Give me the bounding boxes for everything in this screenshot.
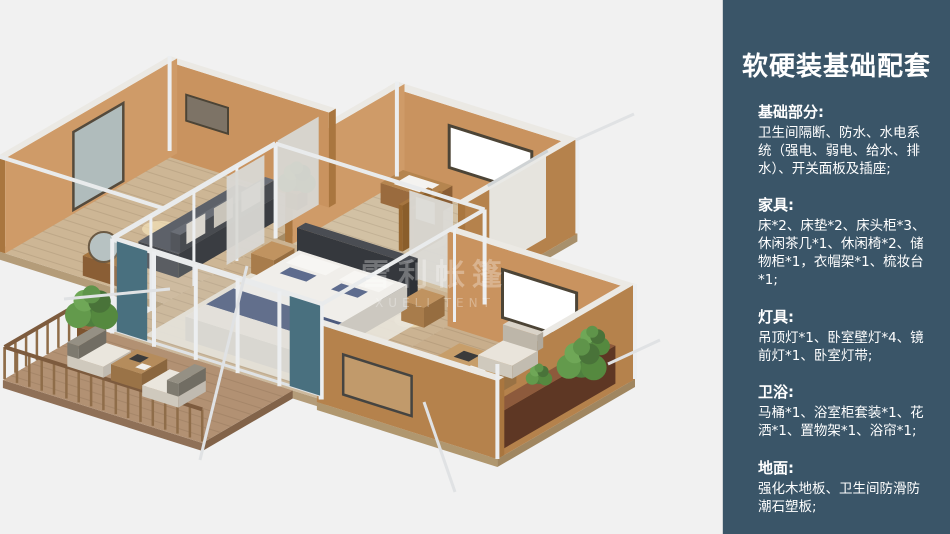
section-heading: 基础部分: — [758, 101, 930, 122]
section-body: 床*2、床垫*2、床头柜*3、休闲茶几*1、休闲椅*2、储物柜*1，衣帽架*1、… — [758, 218, 930, 289]
package-section: 家具:床*2、床垫*2、床头柜*3、休闲茶几*1、休闲椅*2、储物柜*1，衣帽架… — [758, 194, 930, 289]
shelf-plant — [586, 326, 598, 338]
lounge-north-wall — [329, 109, 336, 208]
section-heading: 卫浴: — [758, 381, 930, 402]
towel-ladder — [399, 204, 403, 251]
floorplan-svg — [0, 0, 722, 534]
section-body: 马桶*1、浴室柜套装*1、花洒*1、置物架*1、浴帘*1; — [758, 405, 930, 441]
panel-title: 软硬装基础配套 — [731, 46, 942, 83]
slide: 雪利帐篷 XUELI TENT 软硬装基础配套 基础部分:卫生间隔断、防水、水电… — [0, 0, 950, 534]
section-body: 卫生间隔断、防水、水电系统（强电、弱电、给水、排水）、开关面板及插座; — [758, 125, 930, 178]
package-section: 基础部分:卫生间隔断、防水、水电系统（强电、弱电、给水、排水）、开关面板及插座; — [758, 101, 930, 178]
tent-pole — [576, 114, 634, 140]
teal-drape — [290, 296, 320, 396]
package-section: 灯具:吊顶灯*1、卧室壁灯*4、镜前灯*1、卧室灯带; — [758, 306, 930, 366]
sofa-back — [171, 232, 181, 253]
lounge-west-wall — [0, 156, 5, 253]
floorplan-3d-render: 雪利帐篷 XUELI TENT — [0, 0, 722, 534]
section-heading: 灯具: — [758, 306, 930, 327]
section-body: 吊顶灯*1、卧室壁灯*4、镜前灯*1、卧室灯带; — [758, 330, 930, 366]
study-corner-plant — [573, 339, 590, 356]
package-sections: 基础部分:卫生间隔断、防水、水电系统（强电、弱电、给水、排水）、开关面板及插座;… — [723, 101, 950, 517]
package-section: 地面:强化木地板、卫生间防滑防潮石塑板; — [758, 457, 930, 517]
section-heading: 家具: — [758, 194, 930, 215]
package-section: 卫浴:马桶*1、浴室柜套装*1、花洒*1、置物架*1、浴帘*1; — [758, 381, 930, 441]
package-panel: 软硬装基础配套 基础部分:卫生间隔断、防水、水电系统（强电、弱电、给水、排水）、… — [722, 0, 950, 534]
section-body: 强化木地板、卫生间防滑防潮石塑板; — [758, 481, 930, 517]
section-heading: 地面: — [758, 457, 930, 478]
